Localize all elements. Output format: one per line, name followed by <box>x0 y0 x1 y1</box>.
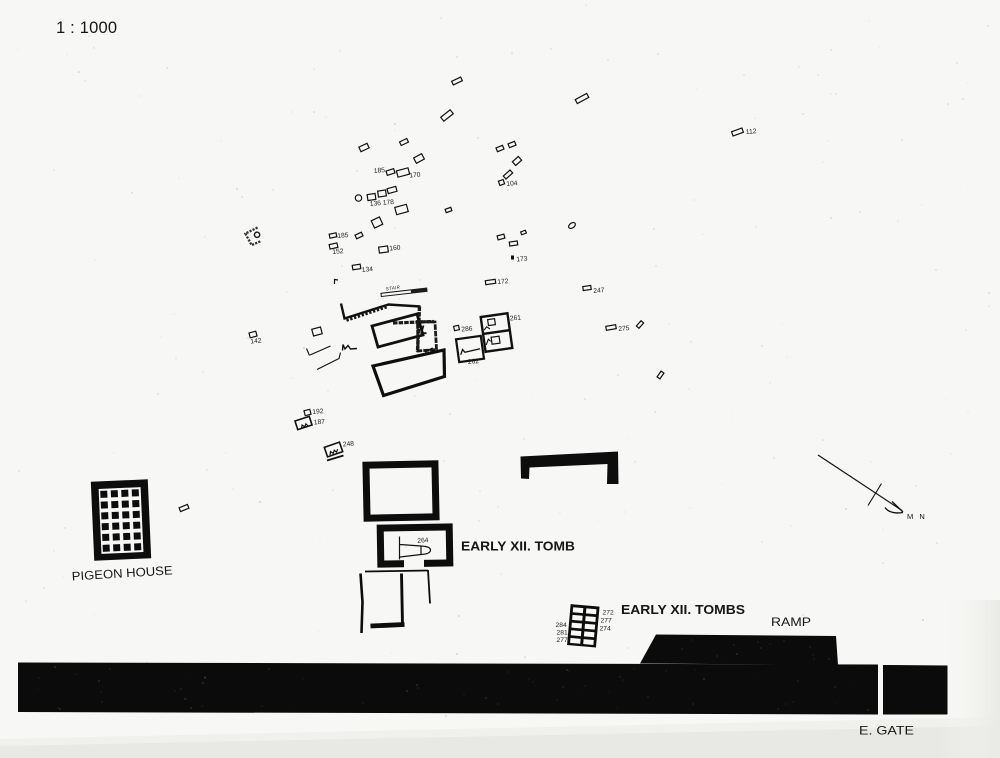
svg-text:142: 142 <box>250 338 262 346</box>
svg-text:247: 247 <box>593 287 605 295</box>
svg-text:134: 134 <box>362 266 374 274</box>
svg-text:192: 192 <box>312 408 324 416</box>
svg-text:185: 185 <box>374 167 386 175</box>
svg-text:277: 277 <box>557 637 568 644</box>
svg-text:281: 281 <box>557 630 568 637</box>
svg-text:264: 264 <box>417 537 429 545</box>
svg-text:104: 104 <box>506 180 518 188</box>
svg-text:275: 275 <box>618 325 630 333</box>
svg-text:1 : 1000: 1 : 1000 <box>56 19 118 37</box>
svg-text:152: 152 <box>332 248 344 256</box>
svg-text:RAMP: RAMP <box>771 615 811 629</box>
svg-text:185: 185 <box>337 232 349 240</box>
svg-text:E. GATE: E. GATE <box>859 724 914 738</box>
svg-text:160: 160 <box>389 245 401 253</box>
svg-text:170: 170 <box>409 172 421 180</box>
svg-text:286: 286 <box>461 326 473 334</box>
svg-text:M N: M N <box>907 512 927 521</box>
svg-text:272: 272 <box>603 610 614 617</box>
svg-text:261: 261 <box>510 315 522 323</box>
svg-text:112: 112 <box>746 128 758 136</box>
svg-text:284: 284 <box>556 622 567 629</box>
svg-text:173: 173 <box>516 256 528 264</box>
svg-text:248: 248 <box>343 441 355 449</box>
svg-text:274: 274 <box>600 626 611 633</box>
svg-text:172: 172 <box>497 278 509 286</box>
svg-text:EARLY XII. TOMB: EARLY XII. TOMB <box>461 539 575 554</box>
svg-text:187: 187 <box>314 419 326 427</box>
svg-text:EARLY XII. TOMBS: EARLY XII. TOMBS <box>621 602 745 617</box>
svg-text:277: 277 <box>601 618 612 625</box>
